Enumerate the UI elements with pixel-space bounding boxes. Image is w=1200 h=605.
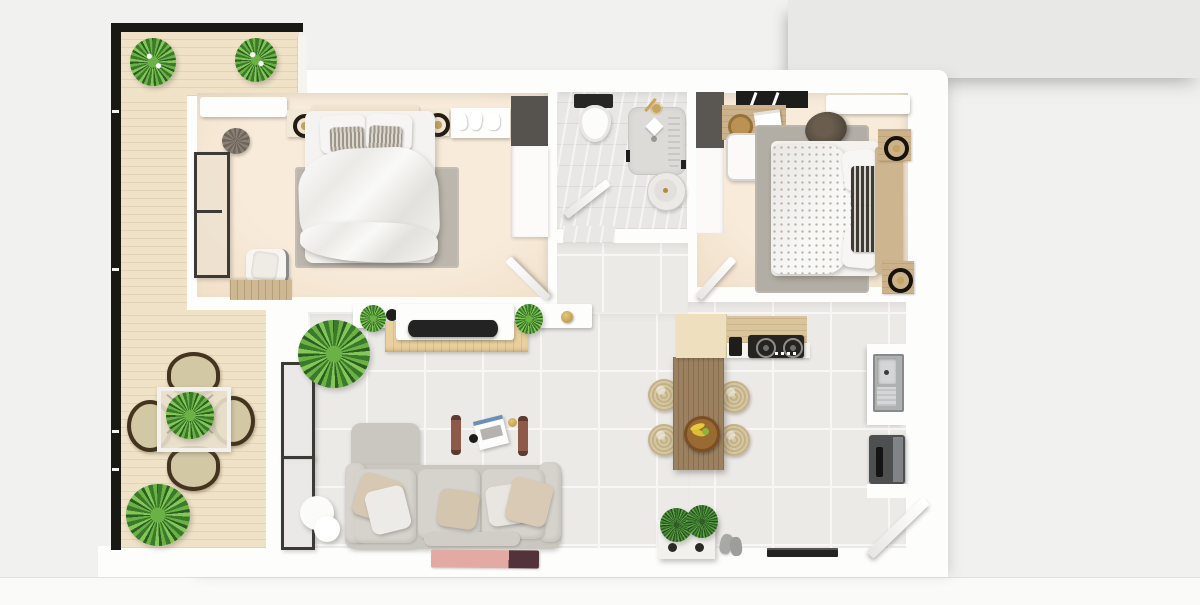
swing-strap-left <box>451 415 461 455</box>
bottom-wall-extension <box>98 546 198 577</box>
appliance-handle <box>876 447 883 477</box>
lime <box>702 428 709 435</box>
balcony-plant-1 <box>130 38 176 86</box>
shoes <box>486 113 500 130</box>
foreground-ledge <box>0 577 1200 605</box>
shower-drainboard <box>668 113 680 167</box>
bedroom-1-window <box>194 152 230 278</box>
counter-return <box>867 484 907 498</box>
chair-garment <box>250 250 280 281</box>
round-pouf <box>222 128 250 154</box>
table-centerpiece-plant <box>166 392 214 439</box>
balcony-deck-left <box>121 95 187 311</box>
bed-2-accent-pillow <box>851 166 878 210</box>
television <box>408 320 498 337</box>
entry-threshold <box>767 548 838 557</box>
basin-faucet <box>681 160 686 169</box>
wardrobe-2-dark <box>696 92 724 148</box>
basin-drain <box>663 188 668 193</box>
lamp-2-top <box>884 136 909 161</box>
brass-pot <box>561 311 573 323</box>
shelf-plant-left <box>360 305 386 332</box>
wardrobe-2-white <box>696 148 724 233</box>
shower-drain <box>651 136 657 142</box>
bathroom-door-gap <box>563 226 615 243</box>
swing-strap-right <box>518 416 528 456</box>
stove-burner-left <box>756 338 776 358</box>
coffee-maker <box>729 337 742 356</box>
appliance-panel <box>893 437 903 482</box>
railing-joint <box>112 430 119 433</box>
floor-lamp-shade <box>314 516 340 542</box>
railing-top <box>111 23 303 32</box>
sink-drainboard <box>877 387 896 406</box>
bedroom-1-ac-unit <box>200 97 287 117</box>
kitchen-cabinet-left <box>676 314 727 358</box>
stove-knobs <box>775 352 797 355</box>
railing-joint <box>112 110 119 113</box>
bedroom-2-ac-unit <box>826 95 910 114</box>
railing-joint <box>112 268 119 271</box>
shower-head <box>652 104 661 113</box>
planter-hole <box>668 543 677 552</box>
sofa-bolster <box>424 532 520 546</box>
brass-item <box>508 418 517 427</box>
floor-plan-render <box>0 0 1200 605</box>
living-houseplant <box>298 320 370 388</box>
outdoor-chair-bottom <box>167 446 220 491</box>
balcony-plant-2 <box>235 38 277 82</box>
bed-2-accent-pillow <box>851 206 878 252</box>
stove-burner-right <box>783 338 803 358</box>
wardrobe-dark-top <box>511 96 548 146</box>
balcony-glass-edge <box>297 36 307 96</box>
dining-table <box>673 357 724 470</box>
bedroom-1-window-bar <box>196 210 222 213</box>
railing-joint <box>112 468 119 471</box>
bed-2-headboard <box>875 147 903 273</box>
upper-floor-slab <box>788 0 1200 78</box>
planter-hole <box>695 543 704 552</box>
dresser <box>230 280 292 300</box>
slipper <box>729 536 743 556</box>
lamp-2-bottom <box>888 268 913 293</box>
wardrobe-white <box>511 146 548 237</box>
planter-succulent <box>686 505 718 538</box>
towel-hook <box>626 150 630 162</box>
pink-door-mat <box>431 550 539 569</box>
balcony-plant-3 <box>126 484 190 546</box>
sink-faucet <box>884 370 889 375</box>
throw-pillow-beige <box>436 487 481 530</box>
hallway-floor <box>557 243 688 312</box>
black-mug <box>469 434 478 443</box>
shelf-plant-right <box>515 304 543 334</box>
